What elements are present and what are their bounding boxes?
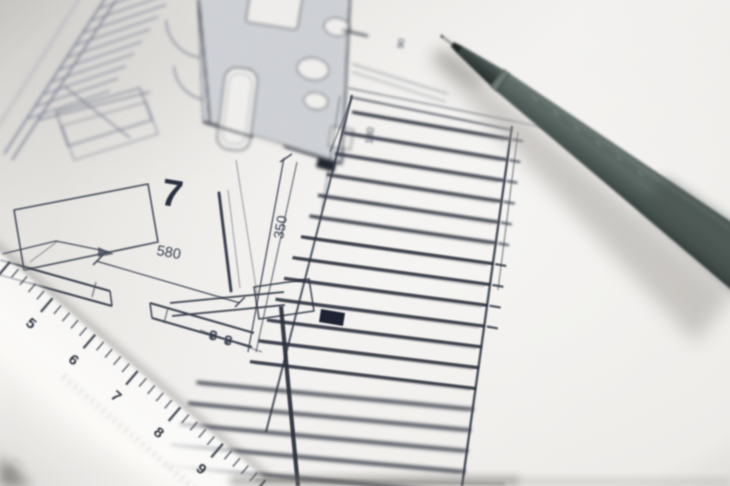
blueprint-photo: 7 580 350 60 — [0, 0, 730, 486]
vignette — [0, 0, 730, 486]
scene-svg: 7 580 350 60 — [0, 0, 730, 486]
